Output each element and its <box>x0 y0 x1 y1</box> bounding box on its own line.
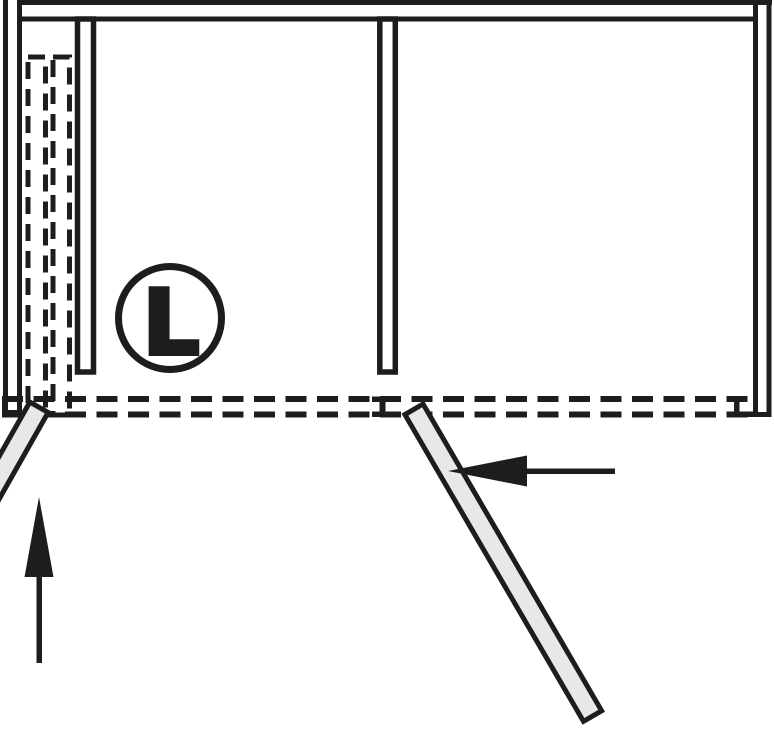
top-panel-outer-line <box>17 0 772 5</box>
door-track-dashed <box>2 397 753 418</box>
right-wall-outer-line <box>767 0 772 417</box>
left-wall-inner-line <box>17 0 22 415</box>
track-right-end-horizontal <box>734 412 753 418</box>
stowed-door-package-dashed <box>28 57 70 415</box>
middle-partition <box>380 19 396 372</box>
folding-door-diagram: L <box>0 0 774 730</box>
up-arrow-head <box>25 497 54 577</box>
stowed-door-2-dashed <box>53 57 70 415</box>
orientation-badge: L <box>119 267 222 377</box>
cabinet-left-wall <box>3 0 22 415</box>
up-arrow-icon <box>25 497 54 663</box>
stowed-door-1-dashed <box>28 57 46 415</box>
left-arrow-shaft <box>527 469 615 475</box>
badge-label: L <box>142 271 199 376</box>
left-wall-outer-line <box>3 0 8 415</box>
diagram-canvas: L <box>0 0 774 730</box>
track-left-end-cap <box>2 398 7 417</box>
right-wall-inner-line <box>753 5 758 417</box>
right-folding-door <box>405 404 602 721</box>
cabinet-right-wall <box>753 0 772 417</box>
up-arrow-shaft <box>37 575 43 663</box>
left-pocket-partition <box>78 19 94 372</box>
left-arrow-icon <box>448 456 615 487</box>
track-middle-pivot-top-serif <box>372 397 393 403</box>
track-middle-pivot-bottom-serif <box>372 412 393 418</box>
right-wall-front-cap <box>753 412 772 417</box>
